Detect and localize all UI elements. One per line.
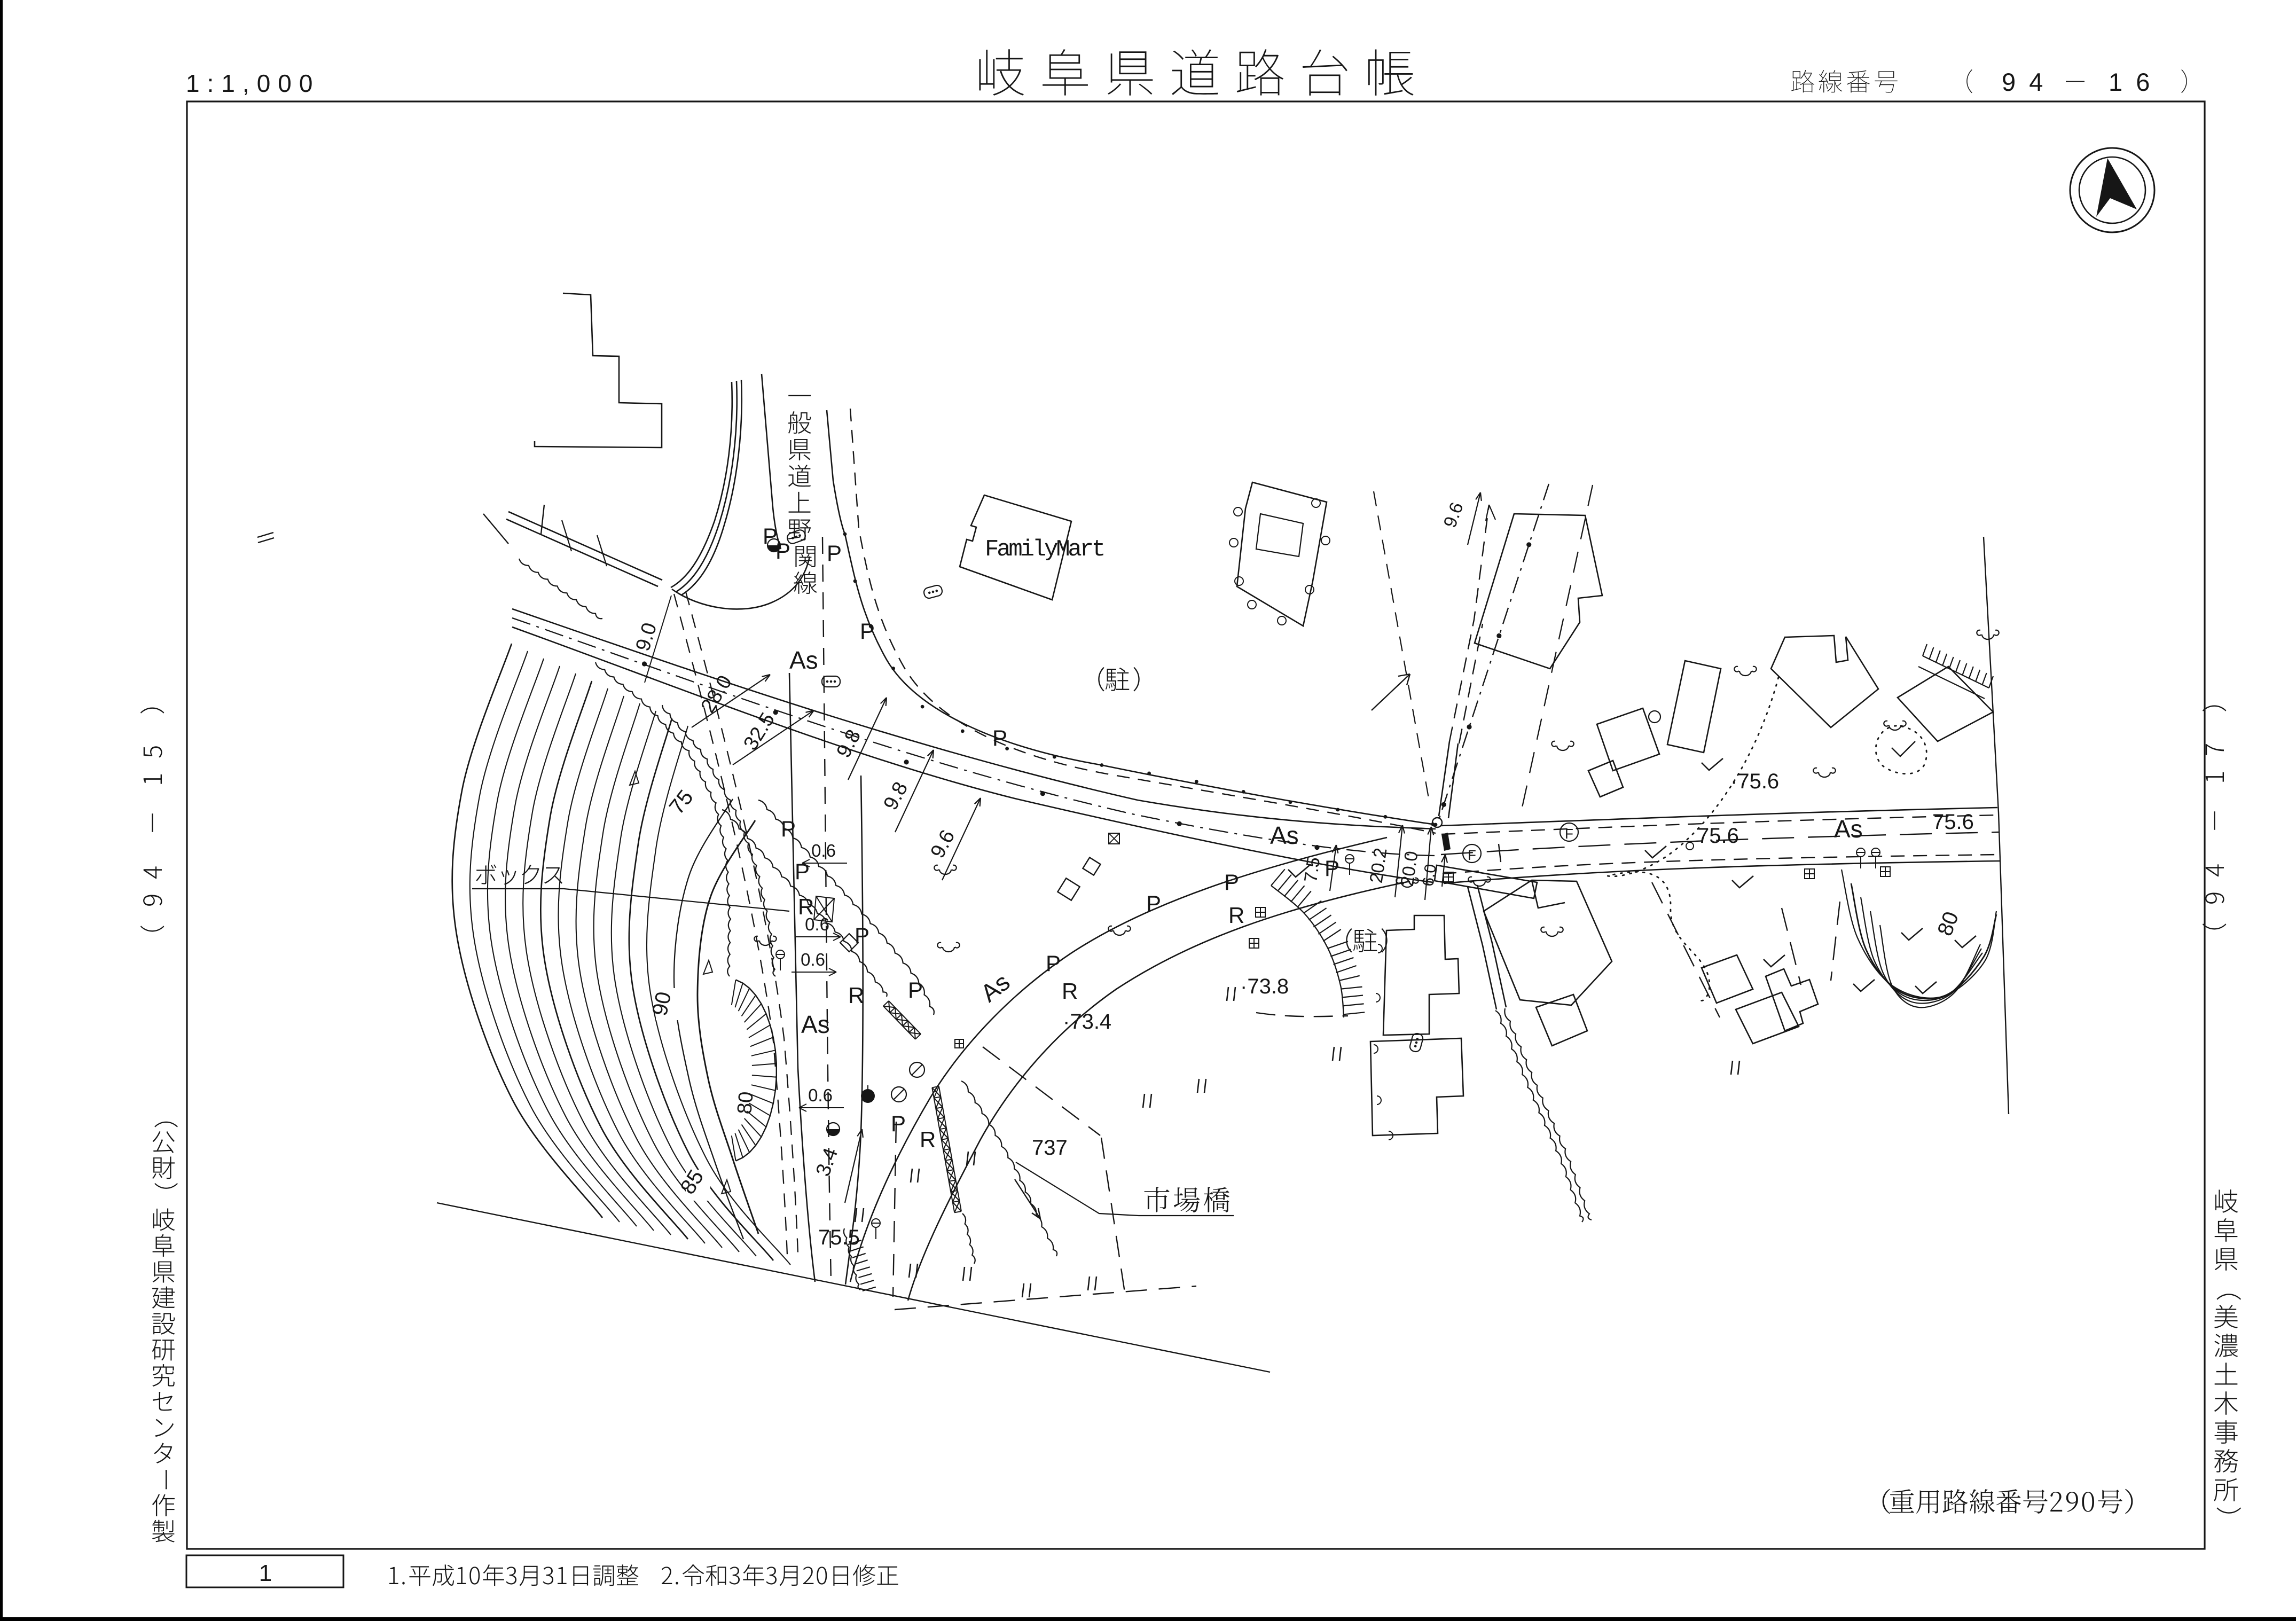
svg-text:80: 80 <box>733 1091 758 1115</box>
svg-text:0.6: 0.6 <box>801 950 825 969</box>
svg-text:As: As <box>1834 815 1863 843</box>
svg-text:P: P <box>795 859 810 884</box>
svg-text:P: P <box>1146 891 1161 916</box>
svg-text:·73.8: ·73.8 <box>1240 975 1289 998</box>
svg-text:R: R <box>920 1127 936 1152</box>
svg-text:P: P <box>1224 870 1239 895</box>
svg-text:90: 90 <box>648 990 676 1018</box>
svg-text:P: P <box>827 541 842 566</box>
svg-text:R: R <box>1228 903 1244 928</box>
svg-text:1: 1 <box>259 1560 272 1586</box>
svg-text:75.5: 75.5 <box>818 1226 860 1249</box>
svg-text:28.0: 28.0 <box>696 671 736 717</box>
svg-text:P: P <box>891 1111 906 1136</box>
svg-text:737: 737 <box>1032 1136 1068 1160</box>
svg-text:20.2: 20.2 <box>1366 847 1391 884</box>
svg-text:R: R <box>1062 978 1078 1004</box>
svg-text:P: P <box>1325 856 1339 881</box>
svg-text:9.8: 9.8 <box>832 726 865 761</box>
svg-text:1 6: 1 6 <box>2109 68 2153 96</box>
svg-text:FamilyMart: FamilyMart <box>985 536 1103 563</box>
svg-text:9 4: 9 4 <box>2002 68 2046 96</box>
svg-text:9.6: 9.6 <box>926 826 959 862</box>
svg-text:9.0: 9.0 <box>632 620 662 654</box>
svg-text:·75.6: ·75.6 <box>1730 770 1779 793</box>
svg-text:75.6: 75.6 <box>1932 810 1974 834</box>
svg-text:1:1,000: 1:1,000 <box>186 69 320 97</box>
svg-text:R: R <box>848 983 864 1008</box>
svg-text:R: R <box>798 894 814 919</box>
svg-text:P: P <box>860 618 875 644</box>
svg-text:75.6: 75.6 <box>1697 824 1739 848</box>
svg-text:·73.4: ·73.4 <box>1063 1010 1111 1033</box>
svg-text:As: As <box>801 1011 830 1038</box>
svg-text:3.4: 3.4 <box>812 1145 843 1179</box>
svg-text:As: As <box>789 646 818 674</box>
svg-text:P: P <box>781 816 796 841</box>
svg-text:P: P <box>992 725 1007 750</box>
svg-text:0.6: 0.6 <box>808 1085 833 1105</box>
svg-text:9.8: 9.8 <box>879 778 912 813</box>
svg-text:P: P <box>908 977 923 1003</box>
svg-text:F: F <box>1565 826 1573 842</box>
svg-text:6.0: 6.0 <box>1419 863 1439 888</box>
svg-text:As: As <box>975 968 1015 1007</box>
svg-text:32.5: 32.5 <box>739 709 779 754</box>
svg-text:0.6: 0.6 <box>811 841 836 860</box>
svg-text:P: P <box>1046 951 1061 976</box>
svg-text:As: As <box>1270 821 1299 849</box>
svg-text:F: F <box>1468 847 1476 863</box>
svg-text:9.6: 9.6 <box>1440 500 1468 530</box>
